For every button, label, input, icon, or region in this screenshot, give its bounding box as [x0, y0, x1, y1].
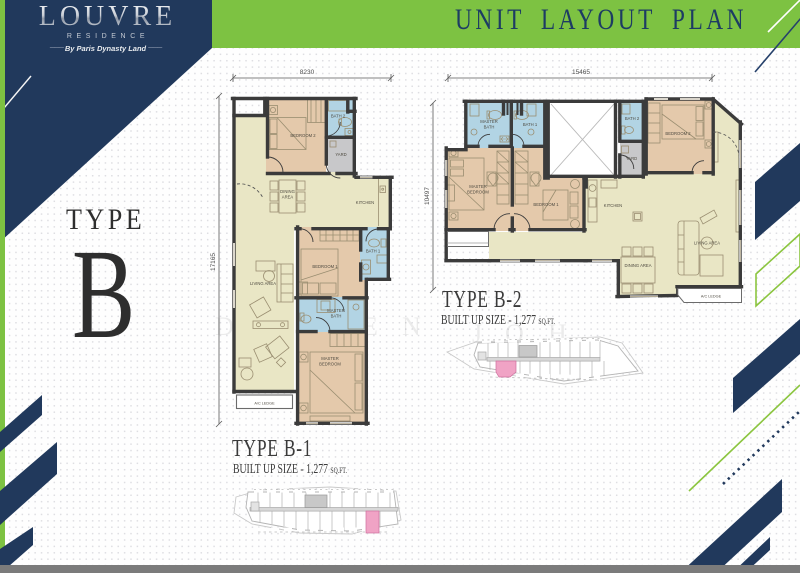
- svg-text:KITCHEN: KITCHEN: [604, 203, 622, 208]
- svg-text:MASTER: MASTER: [480, 119, 497, 124]
- svg-text:DINING: DINING: [280, 189, 295, 194]
- svg-text:MASTER: MASTER: [327, 308, 344, 313]
- svg-text:BATH: BATH: [484, 125, 495, 130]
- svg-text:8230: 8230: [300, 69, 315, 76]
- svg-text:BEDROOM 2: BEDROOM 2: [665, 131, 691, 136]
- svg-text:BATH 2: BATH 2: [625, 116, 640, 121]
- svg-text:AREA: AREA: [282, 195, 294, 200]
- svg-text:LIVING AREA: LIVING AREA: [250, 281, 276, 286]
- svg-text:BEDROOM: BEDROOM: [467, 190, 489, 195]
- svg-text:BATH 2: BATH 2: [331, 114, 346, 119]
- svg-text:DINING AREA: DINING AREA: [625, 263, 652, 268]
- svg-text:YARD: YARD: [335, 152, 346, 157]
- svg-text:BEDROOM 1: BEDROOM 1: [533, 202, 559, 207]
- svg-text:BEDROOM: BEDROOM: [319, 362, 341, 367]
- svg-text:YARD: YARD: [626, 156, 637, 161]
- svg-text:A/C LEDGE: A/C LEDGE: [254, 402, 275, 406]
- svg-text:MASTER: MASTER: [469, 184, 486, 189]
- svg-text:15465: 15465: [572, 69, 590, 76]
- svg-text:BATH 1: BATH 1: [366, 249, 381, 254]
- svg-text:MASTER: MASTER: [321, 356, 338, 361]
- svg-text:BATH: BATH: [331, 314, 342, 319]
- svg-text:BEDROOM 2: BEDROOM 2: [290, 133, 316, 138]
- svg-text:A/C LEDGE: A/C LEDGE: [701, 295, 722, 299]
- svg-text:10497: 10497: [424, 187, 431, 205]
- svg-text:KITCHEN: KITCHEN: [356, 200, 374, 205]
- svg-text:BEDROOM 1: BEDROOM 1: [312, 264, 338, 269]
- svg-text:17165: 17165: [210, 253, 217, 271]
- svg-text:BATH 1: BATH 1: [523, 122, 538, 127]
- svg-text:LIVING AREA: LIVING AREA: [694, 241, 720, 246]
